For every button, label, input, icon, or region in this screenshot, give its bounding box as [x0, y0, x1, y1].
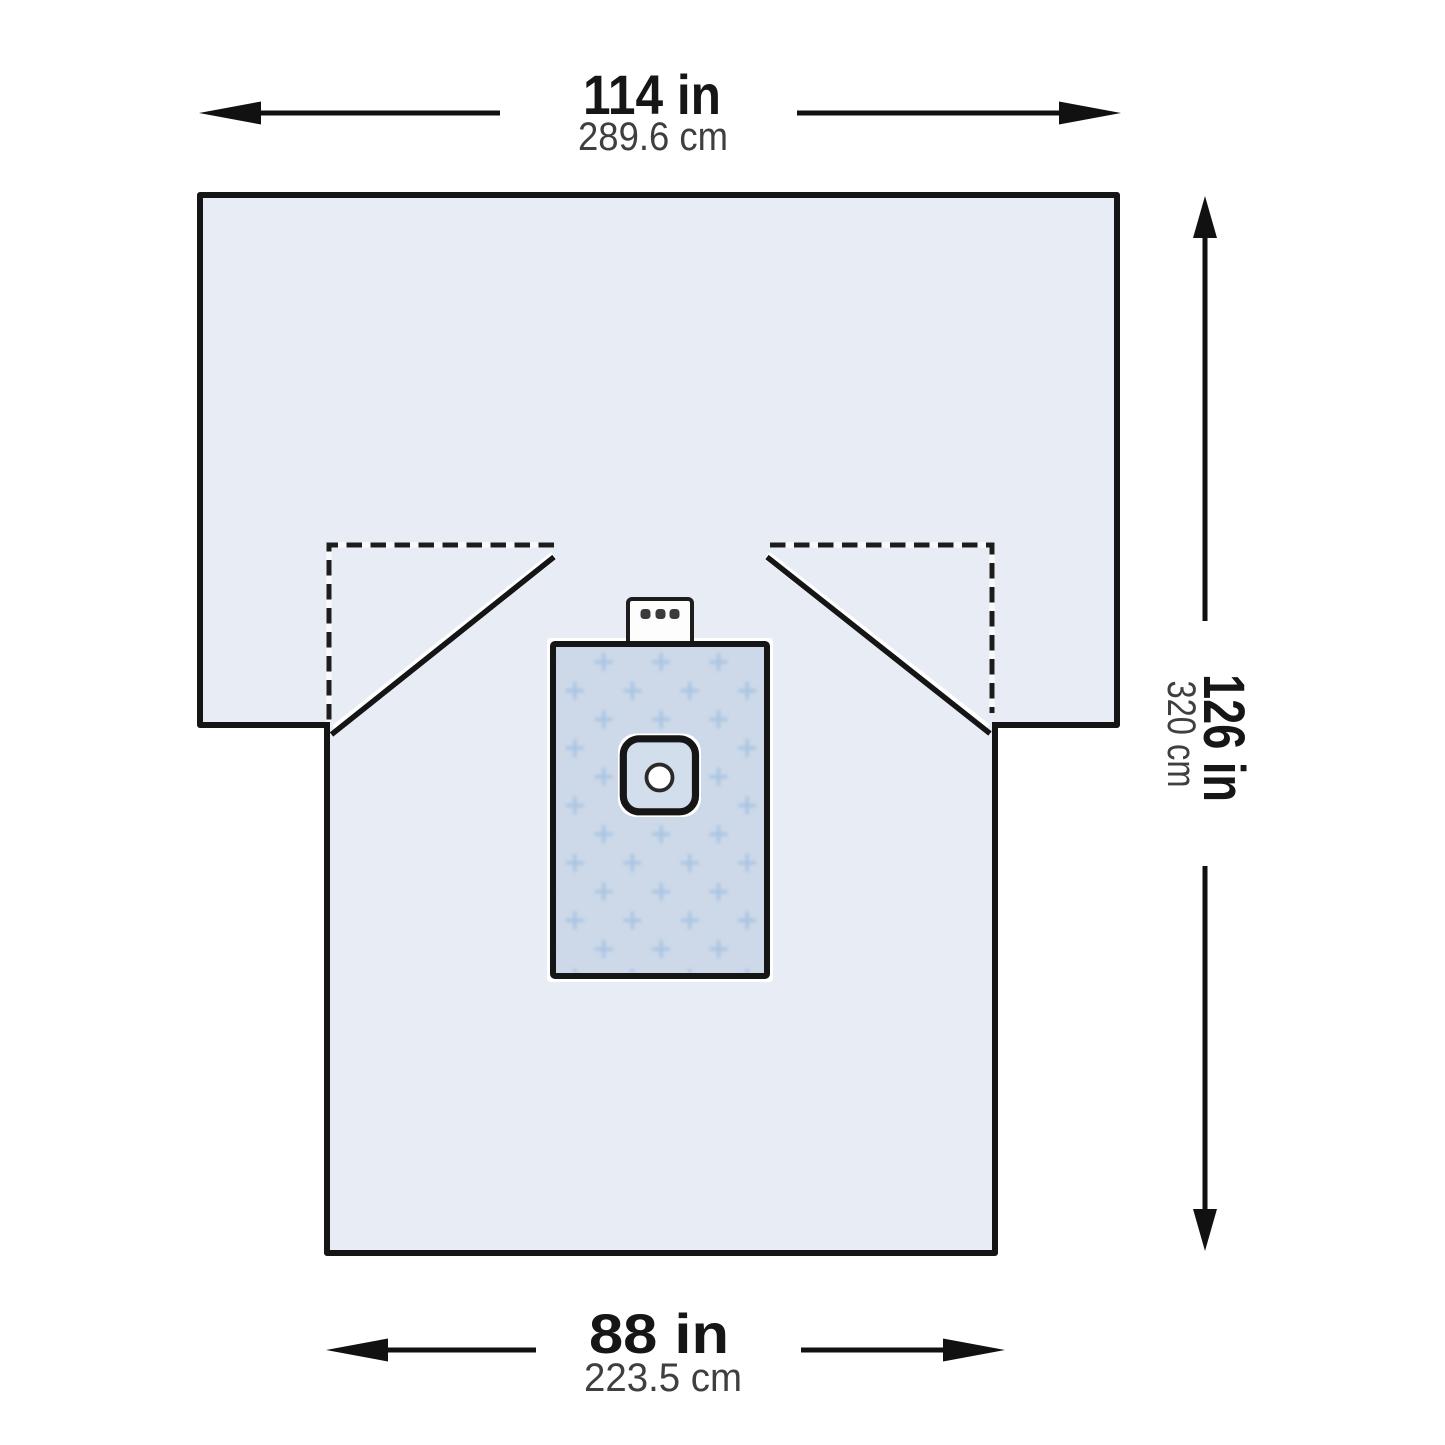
svg-text:223.5 cm: 223.5 cm — [584, 1356, 742, 1400]
svg-text:320 cm: 320 cm — [1159, 681, 1203, 788]
svg-text:289.6 cm: 289.6 cm — [578, 115, 728, 159]
